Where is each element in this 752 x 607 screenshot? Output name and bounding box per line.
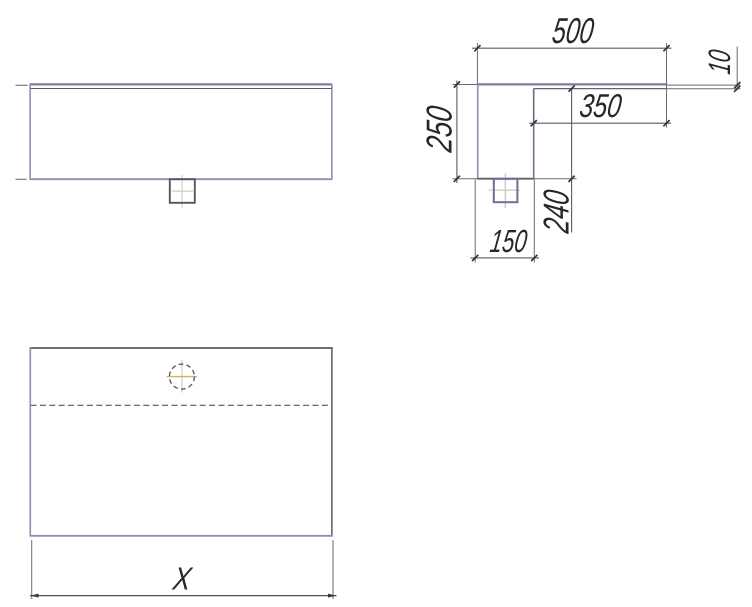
svg-text:350: 350 [577, 88, 624, 125]
svg-text:150: 150 [488, 223, 530, 259]
svg-text:500: 500 [550, 10, 597, 51]
svg-text:10: 10 [702, 48, 737, 76]
svg-text:250: 250 [419, 103, 459, 155]
svg-text:240: 240 [536, 187, 576, 236]
svg-text:X: X [170, 561, 195, 597]
